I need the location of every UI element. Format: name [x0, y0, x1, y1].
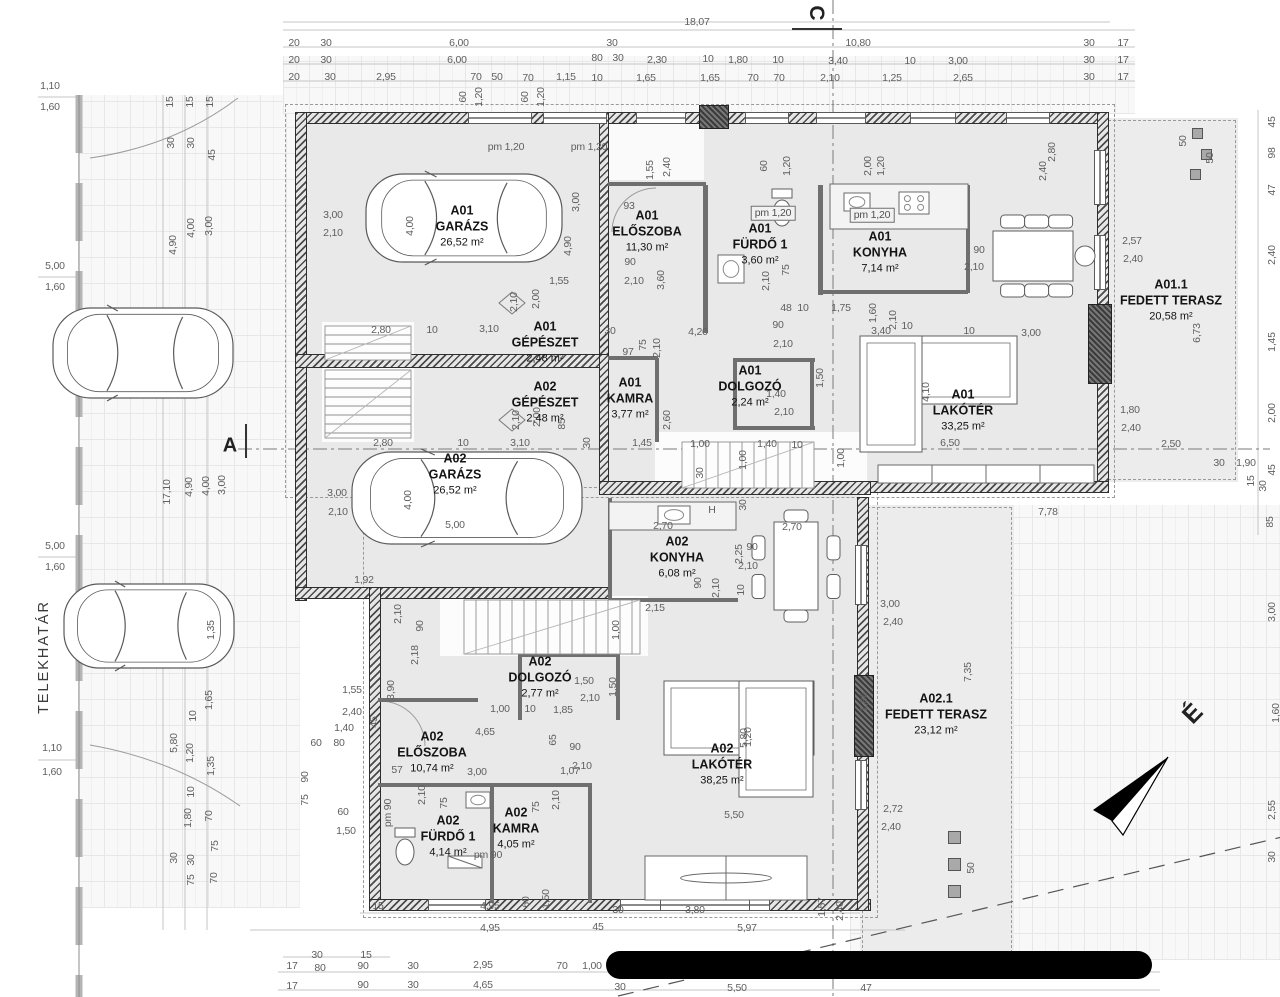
dimension-label: 2,10 [964, 262, 984, 273]
dimension-label: 2,15 [645, 603, 665, 614]
window [910, 112, 956, 124]
dimension-label: 47 [860, 983, 871, 994]
dimension-label: 20 [288, 38, 299, 49]
dimension-label: 2,40 [1123, 254, 1143, 265]
dimension-label: 30 [186, 854, 197, 865]
dimension-label: 30 [614, 982, 625, 993]
dimension-label: 4,00 [186, 218, 197, 238]
dimension-label: pm 1,20 [571, 142, 608, 153]
dimension-label: 3,60 [656, 270, 667, 290]
dimension-label: 4,95 [480, 923, 500, 934]
dimension-label: 1,00 [582, 961, 602, 972]
dimension-label: 50 [1205, 152, 1216, 163]
dimension-label: 30 [186, 137, 197, 148]
dimension-label: 2,72 [883, 804, 903, 815]
pillar-block [855, 676, 873, 756]
dimension-label: 10 [457, 438, 468, 449]
dimension-label: 4,65 [473, 980, 493, 991]
dimension-label: 30 [738, 499, 749, 510]
dimension-label: 30 [695, 467, 706, 478]
dimension-label: 4,90 [563, 236, 574, 256]
dimension-label: 1,60 [868, 303, 879, 323]
dimension-label: 70 [556, 961, 567, 972]
partition-wall [820, 290, 968, 294]
dimension-label: 4,10 [921, 382, 932, 402]
dimension-label: 70 [209, 872, 220, 883]
room-label: A02LAKÓTÉR38,25 m² [692, 741, 752, 788]
dimension-label: 75 [439, 797, 450, 808]
dimension-label: 5,00 [45, 261, 65, 272]
dimension-label: 1,00 [690, 439, 710, 450]
dimension-label: 3,00 [948, 56, 968, 67]
dimension-label: 45 [1267, 116, 1278, 127]
dimension-label: 4,90 [168, 235, 179, 255]
dimension-label: 6,00 [447, 55, 467, 66]
dimension-label: 2,30 [647, 55, 667, 66]
dimension-label: 10 [736, 584, 747, 595]
dimension-label: 50 [966, 862, 977, 873]
dimension-label: 3,00 [1267, 602, 1278, 622]
terrace-post [948, 885, 961, 898]
dimension-label: 2,57 [1122, 236, 1142, 247]
dimension-label: 85 [1265, 516, 1276, 527]
dimension-label: 10 [186, 786, 197, 797]
room-label: A01FÜRDŐ 13,60 m² [733, 221, 788, 268]
dimension-label: 1,10 [42, 743, 62, 754]
window [1006, 112, 1050, 124]
room-label: A01GARÁZS26,52 m² [436, 203, 489, 250]
dimension-label: 1,00 [611, 620, 622, 640]
dimension-label: 1,50 [574, 676, 594, 687]
room-label: A01.1FEDETT TERASZ20,58 m² [1120, 277, 1222, 324]
dimension-label: 1,80 [728, 55, 748, 66]
dimension-label: 2,10 [624, 276, 644, 287]
dimension-label: 70 [470, 72, 481, 83]
dimension-label: 20 [288, 55, 299, 66]
dimension-label: 1,50 [608, 677, 619, 697]
dimension-label: 97 [622, 347, 633, 358]
dimension-label: 90 [772, 320, 783, 331]
dimension-label: 3,00 [327, 488, 347, 499]
dimension-label: 80 [591, 53, 602, 64]
dimension-label: 45 [207, 149, 218, 160]
floorplan-canvas: 18,0710,8020306,0030301720306,0080302,30… [0, 0, 1280, 997]
dimension-label: 2,95 [376, 72, 396, 83]
dimension-label: 7,78 [1038, 507, 1058, 518]
dimension-label: 17 [1117, 72, 1128, 83]
dimension-label: 30 [1213, 458, 1224, 469]
dimension-label: 4,00 [405, 216, 416, 236]
dimension-label: 1,65 [636, 73, 656, 84]
dimension-label: 3,00 [467, 767, 487, 778]
partition-wall [733, 426, 815, 430]
dimension-label: 30 [1083, 38, 1094, 49]
dimension-label: 3,10 [479, 324, 499, 335]
dimension-label: 90 [415, 620, 426, 631]
dimension-label: 10 [188, 710, 199, 721]
dimension-label: 1,60 [1271, 703, 1280, 723]
dimension-label: 4,00 [403, 490, 414, 510]
dimension-label: 2,40 [1267, 245, 1278, 265]
dimension-label: 2,10 [393, 604, 404, 624]
dimension-label: 2,40 [881, 822, 901, 833]
window [468, 112, 532, 124]
dimension-label: 30 [1083, 72, 1094, 83]
dimension-label: 10 [426, 325, 437, 336]
dimension-label: 10 [524, 704, 535, 715]
dimension-label: 10 [797, 303, 808, 314]
dimension-label: 1,25 [882, 73, 902, 84]
dimension-label: 1,20 [536, 87, 547, 107]
dimension-label: 1,75 [831, 303, 851, 314]
dimension-label: 10,80 [845, 38, 870, 49]
dimension-label: 17 [1117, 55, 1128, 66]
partition-wall [608, 498, 612, 602]
dimension-label: 1,60 [45, 562, 65, 573]
window [816, 112, 866, 124]
dimension-label: 15 [1246, 475, 1257, 486]
dimension-label: 3,00 [217, 475, 228, 495]
dimension-label: 17 [286, 961, 297, 972]
room-label: A01GÉPÉSZET2,48 m² [512, 319, 579, 366]
dimension-label: 60 [521, 896, 532, 907]
partition-wall [608, 598, 738, 602]
partition-wall [608, 182, 706, 186]
dimension-label: 1,90 [1236, 458, 1256, 469]
dimension-label: 10 [702, 54, 713, 65]
dimension-label: 2,10 [509, 292, 520, 312]
dimension-label: 75 [300, 794, 311, 805]
section-marker-c: C [804, 5, 828, 20]
dimension-label: 5,50 [724, 810, 744, 821]
dimension-label: 2,10 [761, 271, 772, 291]
dimension-label: pm 1,20 [850, 208, 895, 223]
dimension-label: 2,95 [473, 960, 493, 971]
dimension-label: 2,40 [1038, 161, 1049, 181]
wall-segment [862, 482, 1108, 492]
window [428, 899, 486, 911]
dimension-label: 2,10 [773, 339, 793, 350]
room-label: A02FÜRDŐ 14,14 m² [421, 813, 476, 860]
dimension-label: 1,80 [1120, 405, 1140, 416]
dimension-label: 2,18 [410, 645, 421, 665]
dimension-label: 2,40 [835, 901, 846, 921]
dimension-label: 5,97 [737, 923, 757, 934]
dimension-label: 5,50 [727, 983, 747, 994]
dimension-label: 2,10 [328, 507, 348, 518]
dimension-label: 47 [1267, 184, 1278, 195]
dimension-label: 2,10 [820, 73, 840, 84]
dimension-label: 2,80 [373, 438, 393, 449]
dimension-label: 10 [591, 73, 602, 84]
window [543, 112, 607, 124]
dimension-label: 2,50 [1161, 439, 1181, 450]
dimension-label: 1,40 [334, 723, 354, 734]
dimension-label: 2,10 [580, 693, 600, 704]
dimension-label: 6,50 [940, 438, 960, 449]
dimension-label: 4,90 [184, 477, 195, 497]
wall-segment [370, 588, 380, 910]
dimension-label: 2,40 [342, 707, 362, 718]
dimension-label: 60 [337, 807, 348, 818]
dimension-label: 30 [320, 38, 331, 49]
terrace-post [1190, 169, 1201, 180]
dimension-label: 1,92 [354, 575, 374, 586]
dimension-label: 1,50 [541, 889, 552, 909]
dimension-label: 2,10 [323, 228, 343, 239]
dimension-label: 2,65 [953, 73, 973, 84]
dimension-label: 4,20 [688, 327, 708, 338]
dimension-label: 2,70 [653, 521, 673, 532]
room-label: A02DOLGOZÓ2,77 m² [508, 654, 571, 701]
dimension-label: 20 [288, 72, 299, 83]
dimension-label: 4,95 [480, 901, 500, 912]
dimension-label: 2,80 [1047, 142, 1058, 162]
dimension-label: 10 [904, 56, 915, 67]
dimension-label: 30 [1083, 55, 1094, 66]
dimension-label: 10 [772, 55, 783, 66]
dimension-label: 2,10 [551, 790, 562, 810]
dimension-label: 3,80 [685, 905, 705, 916]
dimension-label: 30 [407, 980, 418, 991]
room-label: A01LAKÓTÉR33,25 m² [933, 387, 993, 434]
dimension-label: 1,15 [556, 72, 576, 83]
dimension-label: 90 [300, 771, 311, 782]
dimension-label: 30 [612, 905, 623, 916]
dimension-label: 1,50 [336, 826, 356, 837]
dimension-label: 45 [1267, 464, 1278, 475]
dimension-label: 5,00 [445, 520, 465, 531]
terrace-post [1192, 128, 1203, 139]
dimension-label: 98 [1267, 147, 1278, 158]
dimension-label: 5,80 [169, 733, 180, 753]
dimension-label: 60 [458, 91, 469, 102]
dimension-label: 2,70 [782, 522, 802, 533]
dimension-label: 2,40 [883, 617, 903, 628]
dimension-label: 30 [1258, 480, 1269, 491]
window [1094, 150, 1106, 205]
dimension-label: 15 [205, 96, 216, 107]
partition-wall [966, 185, 970, 293]
dimension-label: 10 [901, 321, 912, 332]
dimension-label: 1,86 [859, 692, 870, 712]
dimension-label: 2,00 [531, 289, 542, 309]
pillar-block [700, 106, 728, 128]
partition-wall [733, 358, 815, 362]
dimension-label: 2,80 [371, 325, 391, 336]
dimension-label: 1,20 [876, 156, 887, 176]
dimension-label: 17,10 [162, 479, 173, 504]
dimension-label: 2,10 [652, 338, 663, 358]
dimension-label: 75 [638, 339, 649, 350]
dimension-label: 1,20 [185, 743, 196, 763]
room-label: A02GARÁZS26,52 m² [429, 451, 482, 498]
dimension-label: 1,00 [490, 704, 510, 715]
dimension-label: 90 [624, 257, 635, 268]
dimension-label: 17 [1117, 38, 1128, 49]
dimension-label: 70 [204, 810, 215, 821]
partition-wall [378, 783, 590, 787]
partition-wall [818, 185, 823, 295]
dimension-label: 1,55 [549, 276, 569, 287]
dimension-label: 10 [791, 440, 802, 451]
dimension-label: 4,00 [201, 476, 212, 496]
dimension-label: 60 [759, 160, 770, 171]
dimension-label: 2,10 [417, 785, 428, 805]
terrace-post [948, 858, 961, 871]
dimension-label: 1,55 [645, 160, 656, 180]
window [855, 545, 867, 605]
wall-segment [296, 588, 608, 598]
dimension-label: 1,65 [204, 690, 215, 710]
dimension-label: 45 [592, 922, 603, 933]
dimension-label: 3,00 [571, 192, 582, 212]
dimension-label: 90 [357, 961, 368, 972]
window [636, 112, 686, 124]
dimension-label: 3,00 [204, 216, 215, 236]
room-label: A02KONYHA6,08 m² [650, 534, 704, 581]
dimension-label: 30 [169, 852, 180, 863]
property-boundary-label: TELEKHATÁR [36, 600, 52, 714]
dimension-label: 1,65 [700, 73, 720, 84]
dimension-label: 1,07 [560, 766, 580, 777]
dimension-label: pm 1,20 [751, 206, 796, 221]
dimension-label: 1,45 [1267, 332, 1278, 352]
dimension-label: 90 [973, 245, 984, 256]
room-label: A02.1FEDETT TERASZ23,12 m² [885, 691, 987, 738]
dimension-label: 90 [357, 980, 368, 991]
room-label: A02ELŐSZOBA10,74 m² [397, 729, 466, 776]
dimension-label: 1,55 [342, 685, 362, 696]
partition-wall [703, 185, 708, 333]
dimension-label: 30 [604, 326, 615, 337]
dimension-label: 17 [286, 981, 297, 992]
dimension-label: 1,00 [836, 448, 847, 468]
dimension-label: 2,00 [1267, 403, 1278, 423]
dimension-label: 60 [310, 738, 321, 749]
dimension-label: 2,10 [888, 310, 899, 330]
section-marker-a: A [223, 435, 237, 458]
dimension-label: 45 [369, 716, 380, 727]
dimension-label: 80 [333, 738, 344, 749]
dimension-label: 1,35 [206, 620, 217, 640]
dimension-label: 1,60 [45, 282, 65, 293]
dimension-label: 7,35 [963, 662, 974, 682]
wall-segment [600, 482, 870, 494]
dimension-label: 2,10 [711, 578, 722, 598]
dimension-label: 50 [1178, 135, 1189, 146]
dimension-label: 2,25 [734, 544, 745, 564]
dimension-label: 3,00 [323, 210, 343, 221]
dimension-label: 3,10 [510, 438, 530, 449]
dimension-label: 60 [520, 91, 531, 102]
dimension-label: 1,10 [40, 81, 60, 92]
dimension-label: 15 [372, 901, 383, 912]
dimension-label: 3,90 [386, 680, 397, 700]
dimension-label: 1,20 [782, 156, 793, 176]
room-label: A01KAMRA3,77 m² [607, 375, 654, 422]
dimension-label: 1,20 [474, 87, 485, 107]
dimension-label: 70 [522, 73, 533, 84]
window [1094, 235, 1106, 290]
dimension-label: pm 90 [383, 799, 394, 827]
room-label: A02GÉPÉSZET2,48 m² [512, 379, 579, 426]
dimension-label: 3,00 [880, 599, 900, 610]
dimension-label: H [708, 505, 715, 516]
dimension-label: 30 [166, 137, 177, 148]
dimension-label: 70 [773, 73, 784, 84]
dimension-label: 2,55 [1267, 800, 1278, 820]
dimension-label: 1,00 [738, 450, 749, 470]
dimension-label: 1,50 [815, 368, 826, 388]
terrace-post [948, 831, 961, 844]
dimension-label: 2,60 [662, 410, 673, 430]
dimension-label: 80 [314, 963, 325, 974]
dimension-label: 30 [320, 55, 331, 66]
partition-wall [588, 783, 592, 903]
dimension-label: 1,45 [632, 438, 652, 449]
dimension-label: 15 [165, 96, 176, 107]
dimension-label: 3,40 [828, 56, 848, 67]
dimension-label: 2,00 [863, 156, 874, 176]
dimension-label: 5,00 [45, 541, 65, 552]
dimension-label: 1,60 [40, 102, 60, 113]
dimension-label: 10 [963, 326, 974, 337]
dimension-label: 75 [210, 840, 221, 851]
dimension-label: 6,73 [1192, 323, 1203, 343]
dimension-label: 15 [360, 950, 371, 961]
dimension-label: 18,07 [684, 17, 709, 28]
room-label: A01KONYHA7,14 m² [853, 229, 907, 276]
dimension-label: 50 [491, 72, 502, 83]
redaction-bar [606, 951, 1152, 979]
dimension-label: 30 [582, 437, 593, 448]
dimension-label: 30 [606, 38, 617, 49]
dimension-label: 3,00 [1021, 328, 1041, 339]
dimension-label: 6,00 [449, 38, 469, 49]
dimension-label: 2,40 [1121, 423, 1141, 434]
dimension-label: 90 [746, 542, 757, 553]
dimension-label: 1,85 [553, 705, 573, 716]
dimension-label: 48 [780, 303, 791, 314]
dimension-label: 1,40 [757, 439, 777, 450]
dimension-label: 15 [185, 96, 196, 107]
dimension-label: 30 [612, 53, 623, 64]
dimension-label: 4,65 [475, 727, 495, 738]
partition-wall [655, 358, 659, 442]
dimension-label: 1,35 [206, 756, 217, 776]
dimension-label: 65 [548, 734, 559, 745]
dimension-label: 30 [324, 72, 335, 83]
dimension-label: pm 1,20 [488, 142, 525, 153]
dimension-label: 1,80 [183, 808, 194, 828]
dimension-label: 70 [747, 73, 758, 84]
dimension-label: 90 [569, 742, 580, 753]
room-label: A01ELŐSZOBA11,30 m² [612, 208, 681, 255]
room-label: A02KAMRA4,05 m² [493, 805, 540, 852]
dimension-label: 1,57 [817, 897, 828, 917]
dimension-label: 2,40 [662, 157, 673, 177]
dimension-label: 75 [186, 874, 197, 885]
room-label: A01DOLGOZÓ2,24 m² [718, 363, 781, 410]
dimension-label: 30 [1267, 851, 1278, 862]
window [855, 760, 867, 810]
dimension-label: 30 [407, 961, 418, 972]
pillar-block [1089, 305, 1111, 383]
dimension-label: 30 [311, 950, 322, 961]
window [745, 112, 789, 124]
dimension-label: 1,60 [42, 767, 62, 778]
